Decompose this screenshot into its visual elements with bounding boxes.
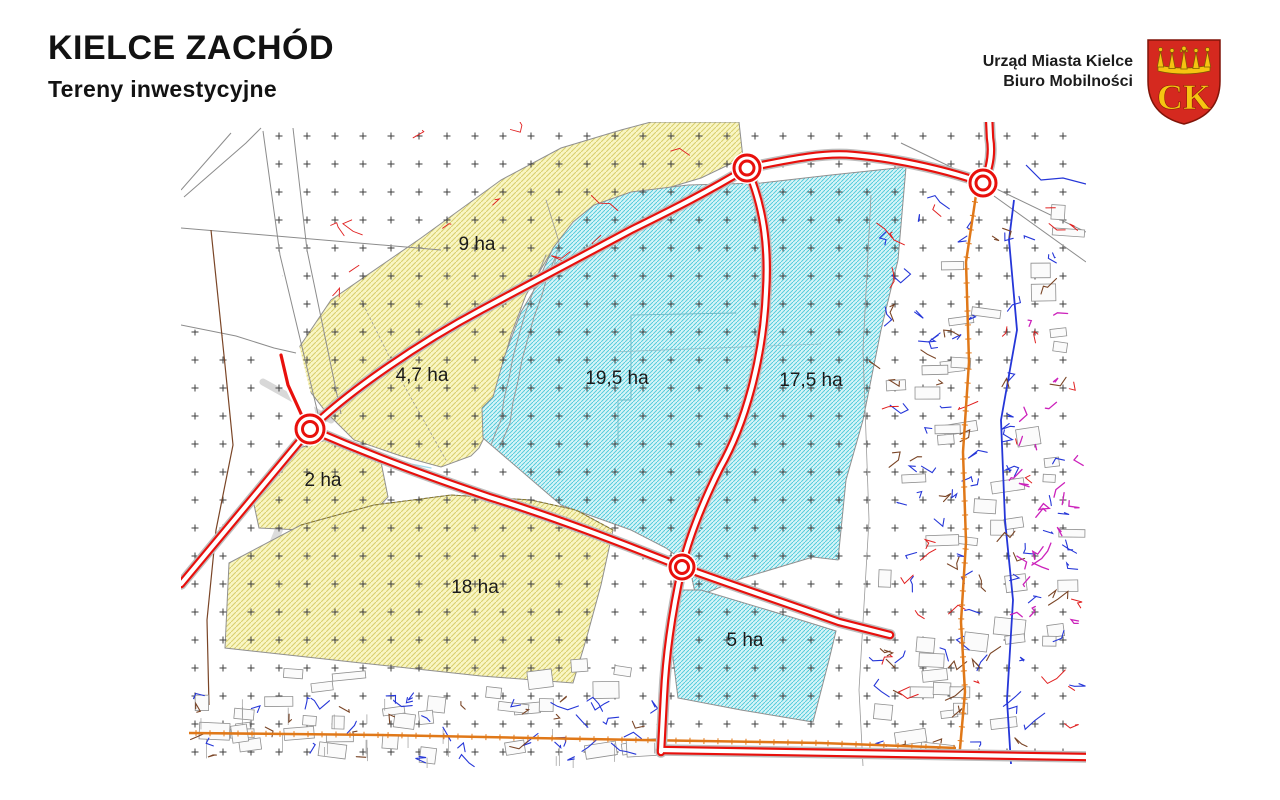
- page-subtitle: Tereny inwestycyjne: [48, 76, 277, 103]
- area-label-4-7ha: 4,7 ha: [396, 365, 449, 386]
- survey-grid: [181, 122, 1086, 768]
- area-label-9ha: 9 ha: [459, 234, 496, 255]
- area-label-17-5ha: 17,5 ha: [779, 370, 843, 391]
- organization-block: Urząd Miasta Kielce Biuro Mobilności: [840, 52, 1133, 92]
- area-label-18ha: 18 ha: [451, 577, 499, 598]
- map-svg: 9 ha4,7 ha19,5 ha17,5 ha2 ha18 ha5 ha: [181, 122, 1086, 768]
- organization-line1: Urząd Miasta Kielce: [840, 52, 1133, 72]
- area-label-5ha: 5 ha: [727, 630, 764, 651]
- page-title: KIELCE ZACHÓD: [48, 30, 334, 67]
- area-label-2ha: 2 ha: [305, 470, 342, 491]
- organization-line2: Biuro Mobilności: [840, 72, 1133, 92]
- logo-monogram: CK: [1157, 77, 1211, 117]
- area-label-19-5ha: 19,5 ha: [585, 368, 649, 389]
- investment-map: 9 ha4,7 ha19,5 ha17,5 ha2 ha18 ha5 ha: [181, 122, 1086, 768]
- kielce-coat-of-arms-logo: CK: [1145, 38, 1223, 126]
- page: KIELCE ZACHÓD Tereny inwestycyjne Urząd …: [0, 0, 1280, 800]
